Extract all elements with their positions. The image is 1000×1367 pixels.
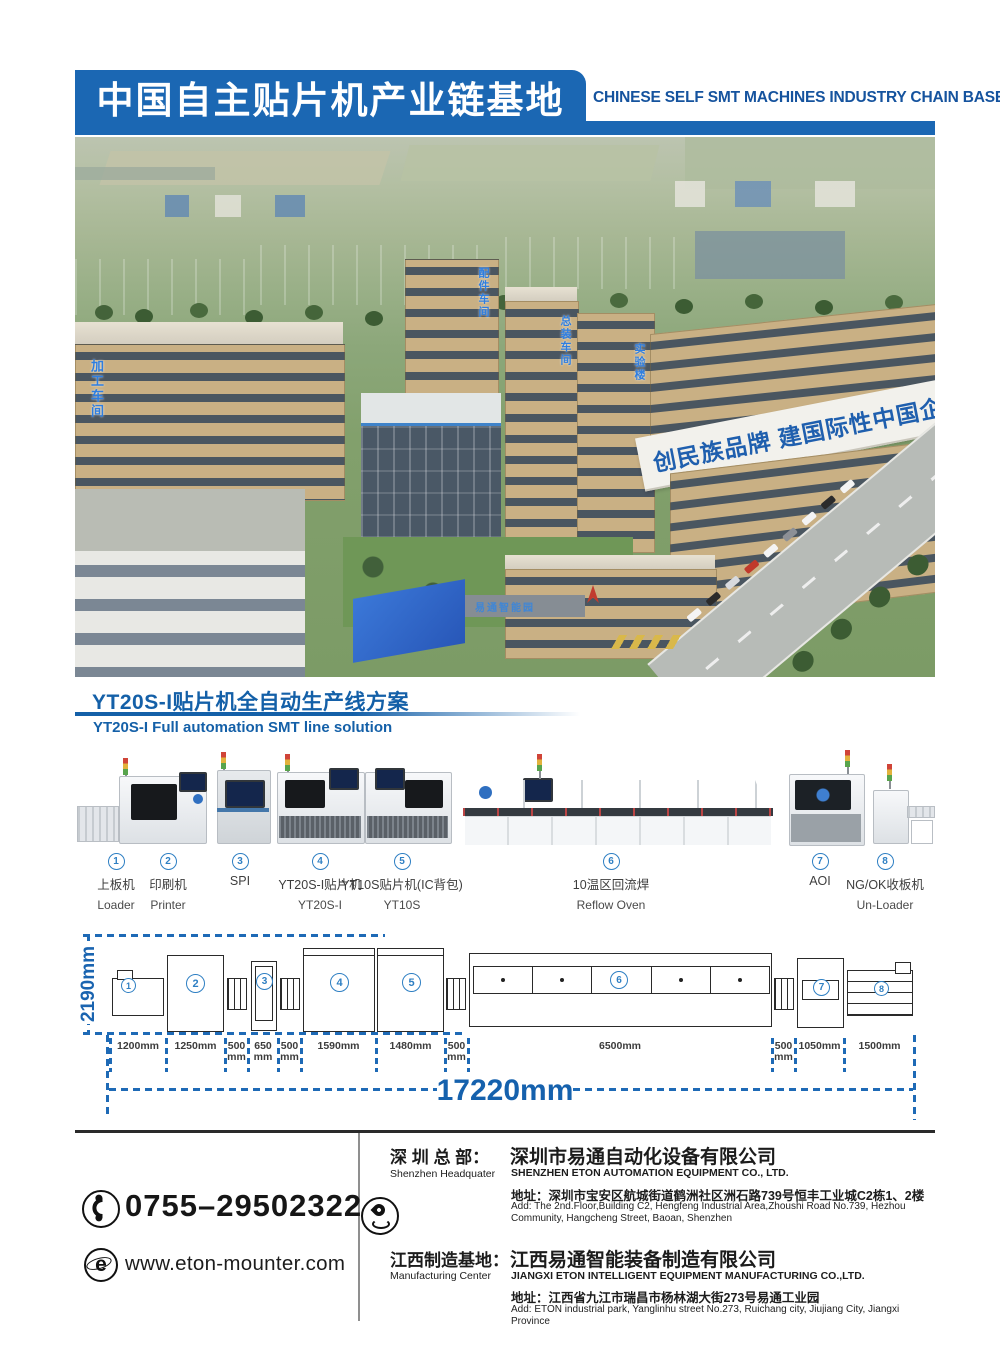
- total-dash-h-left: [109, 1088, 437, 1091]
- dim-segment: 650mm: [248, 1038, 278, 1074]
- outline-unloader-detail: [895, 962, 911, 974]
- station-number: 8: [877, 853, 894, 870]
- oven-zone: [652, 967, 711, 993]
- tree: [788, 647, 818, 676]
- dim-segment: 6500mm: [468, 1038, 772, 1074]
- diagram-number: 7: [813, 979, 830, 996]
- page-title-en: CHINESE SELF SMT MACHINES INDUSTRY CHAIN…: [593, 89, 928, 107]
- aoi-lower-panel: [791, 814, 861, 842]
- dim-value: 1250mm: [166, 1041, 225, 1052]
- printer-front-panel: [131, 784, 177, 820]
- website-url[interactable]: www.eton-mounter.com: [125, 1252, 345, 1276]
- station-name-en: YT10S: [384, 898, 421, 912]
- outline-conveyor: [774, 978, 794, 1010]
- website-icon: e: [84, 1248, 118, 1282]
- footer-rule: [75, 1130, 935, 1133]
- header-bar: [75, 121, 935, 135]
- diagram-number: 4: [330, 973, 349, 992]
- printer-monitor: [179, 772, 207, 792]
- dim-segment: 1500mm: [844, 1038, 915, 1074]
- station-name-en: Un-Loader: [857, 898, 914, 912]
- assembly-tower-label: 总装车间: [557, 315, 573, 367]
- unloader-cabinet: [873, 790, 909, 844]
- station-reflow: 6 10温区回流焊 Reflow Oven: [551, 853, 671, 912]
- distant-houses: [675, 181, 915, 207]
- dim-unit: mm: [248, 1052, 278, 1063]
- outline-conveyor: [227, 978, 247, 1010]
- station-unloader: 8 NG/OK收板机 Un-Loader: [825, 853, 945, 912]
- header-banner: 中国自主贴片机产业链基地: [75, 70, 586, 123]
- loader-conveyor: [77, 806, 119, 842]
- dim-value: 6500mm: [468, 1041, 772, 1052]
- station-name-en: Reflow Oven: [577, 898, 646, 912]
- total-dimension-label: 17220mm: [435, 1074, 575, 1108]
- dim-segment: 500mm: [225, 1038, 248, 1074]
- white-building: [75, 551, 305, 677]
- diagram-number: 6: [610, 971, 628, 989]
- section-title-en: YT20S-I Full automation SMT line solutio…: [93, 719, 392, 736]
- outline-loader: [112, 978, 164, 1016]
- yt10s-feeder-bank: [367, 816, 448, 838]
- spi-band: [217, 808, 269, 812]
- line-dimension-diagram: 2190mm 1 2 3 4 5 6 7 8 1200mm: [75, 928, 935, 1128]
- yt20s-window: [285, 780, 325, 808]
- outline-conveyor: [446, 978, 466, 1010]
- dim-value: 1590mm: [301, 1041, 376, 1052]
- station-number: 3: [232, 853, 249, 870]
- station-number: 6: [603, 853, 620, 870]
- office2-label-en: Manufacturing Center: [390, 1270, 491, 1282]
- dim-segment: 500mm: [772, 1038, 795, 1074]
- office1-company-en: SHENZHEN ETON AUTOMATION EQUIPMENT CO., …: [511, 1167, 789, 1179]
- yt20s-monitor: [329, 768, 359, 790]
- station-name-cn: NG/OK收板机: [846, 874, 924, 893]
- office2-address-en: Add: ETON industrial park, Yanglinhu str…: [511, 1304, 925, 1328]
- outline-yt10s-toprail: [377, 948, 444, 956]
- signal-tower: [221, 752, 226, 769]
- aoi-screen: [795, 780, 851, 810]
- office2-label-cn: 江西制造基地：: [390, 1246, 509, 1271]
- oven-lid: [467, 780, 767, 808]
- dim-unit: mm: [278, 1052, 301, 1063]
- phone-icon: [82, 1190, 120, 1228]
- diagram-number: 2: [186, 974, 205, 993]
- footer-divider: [358, 1133, 360, 1321]
- outline-yt20s-toprail: [303, 948, 375, 956]
- oven-conveyor-band: [463, 808, 773, 816]
- phone-number[interactable]: 0755–29502322: [125, 1188, 362, 1224]
- white-building-roof: [75, 489, 305, 551]
- phone-handset-glyph: [87, 1194, 115, 1222]
- yt10s-monitor: [375, 768, 405, 790]
- height-dimension-label: 2190mm: [78, 944, 100, 1024]
- dim-segment: 500mm: [278, 1038, 301, 1074]
- warehouse-roof: [505, 237, 690, 289]
- field-patch: [401, 145, 660, 181]
- signal-tower: [887, 764, 892, 781]
- yt20s-feeder-bank: [279, 816, 361, 838]
- pin-base: [372, 1219, 390, 1229]
- station-name-cn: YT10S贴片机(IC背包): [341, 874, 463, 893]
- dim-value: 1200mm: [110, 1041, 166, 1052]
- tree: [95, 305, 113, 320]
- diagram-number: 3: [256, 973, 273, 990]
- dim-segment: 1050mm: [795, 1038, 844, 1074]
- signal-tower: [123, 758, 128, 775]
- yt10s-window: [405, 780, 443, 808]
- process-building: [75, 344, 345, 501]
- road-markings-yellow: [611, 635, 689, 649]
- oven-zone: [474, 967, 533, 993]
- dim-segment: 1590mm: [301, 1038, 376, 1074]
- dim-value: 1500mm: [844, 1041, 915, 1052]
- spi-screen: [225, 780, 265, 808]
- distant-houses: [155, 195, 395, 217]
- section-title-rule: [75, 712, 580, 716]
- glass-building-roof: [361, 393, 501, 426]
- pin-glyph: [371, 1202, 388, 1219]
- location-pin-icon: [361, 1197, 399, 1235]
- parts-building-label: 配件车间: [475, 267, 491, 319]
- signal-tower: [537, 754, 542, 771]
- dim-value: 1480mm: [376, 1041, 445, 1052]
- signal-tower: [845, 750, 850, 767]
- oven-logo: [479, 786, 492, 799]
- office1-company-cn: 深圳市易通自动化设备有限公司: [510, 1142, 776, 1169]
- unloader-conveyor: [907, 806, 935, 818]
- warehouse-roof: [695, 231, 845, 279]
- diagram-number: 1: [121, 978, 136, 993]
- tree: [826, 614, 856, 643]
- gate-building-roof: [505, 555, 715, 570]
- segment-ruler: 1200mm 1250mm 500mm 650mm 500mm 1590mm 1…: [110, 1038, 915, 1074]
- station-name-cn: 10温区回流焊: [573, 874, 649, 893]
- office2-company-en: JIANGXI ETON INTELLIGENT EQUIPMENT MANUF…: [511, 1270, 865, 1282]
- diagram-number: 5: [402, 973, 421, 992]
- smt-line-photo: [75, 750, 935, 856]
- oven-zone: [533, 967, 592, 993]
- dim-unit: mm: [445, 1052, 468, 1063]
- diagram-number: 8: [874, 981, 889, 996]
- outline-printer: [167, 955, 224, 1032]
- lab-building-label: 实验楼: [631, 343, 647, 382]
- dim-dash-top: [83, 934, 385, 937]
- station-yt10s: 5 YT10S贴片机(IC背包) YT10S: [317, 853, 487, 912]
- signal-tower: [285, 754, 290, 771]
- unloader-frame: [911, 820, 933, 844]
- gate-sign: 易通智能园: [475, 599, 535, 614]
- dim-unit: mm: [225, 1052, 248, 1063]
- tree: [903, 550, 933, 579]
- river: [75, 167, 215, 180]
- process-building-label: 加工车间: [87, 359, 106, 419]
- process-building-roof: [75, 322, 343, 345]
- assembly-tower-roof: [505, 287, 577, 302]
- dim-segment: 1250mm: [166, 1038, 225, 1074]
- office1-label-cn: 深 圳 总 部：: [390, 1143, 489, 1168]
- dim-value: 1050mm: [795, 1041, 844, 1052]
- page-title-cn: 中国自主贴片机产业链基地: [97, 70, 565, 124]
- total-dash-h-right: [573, 1088, 913, 1091]
- station-number: 5: [394, 853, 411, 870]
- dim-dash-bottom: [83, 1032, 463, 1035]
- office1-address-en: Add: The 2nd.Floor,Building C2, Hengfeng…: [511, 1201, 925, 1225]
- office2-company-cn: 江西易通智能装备制造有限公司: [510, 1245, 776, 1272]
- tree: [865, 582, 895, 611]
- total-dash-right: [913, 1035, 916, 1120]
- oven-body: [465, 816, 771, 845]
- station-name-cn: SPI: [230, 874, 250, 888]
- oven-zone: [711, 967, 769, 993]
- dim-unit: mm: [772, 1052, 795, 1063]
- dim-segment: 1480mm: [376, 1038, 445, 1074]
- total-dash-left: [106, 1035, 109, 1115]
- station-number: 2: [160, 853, 177, 870]
- station-labels: 1 上板机 Loader 2 印刷机 Printer 3 SPI 4 YT20S…: [75, 853, 935, 911]
- brand-logo: [193, 794, 203, 804]
- brochure-page: 中国自主贴片机产业链基地 CHINESE SELF SMT MACHINES I…: [0, 0, 1000, 1367]
- dim-segment: 500mm: [445, 1038, 468, 1074]
- station-name-en: Printer: [150, 898, 185, 912]
- dim-segment: 1200mm: [110, 1038, 166, 1074]
- office1-label-en: Shenzhen Headquater: [390, 1168, 495, 1180]
- outline-conveyor: [280, 978, 300, 1010]
- campus-aerial-photo: 配件车间 加工车间 总装车间 实验楼 创民族品牌 建国际性中国企业 易通智能园: [75, 137, 935, 677]
